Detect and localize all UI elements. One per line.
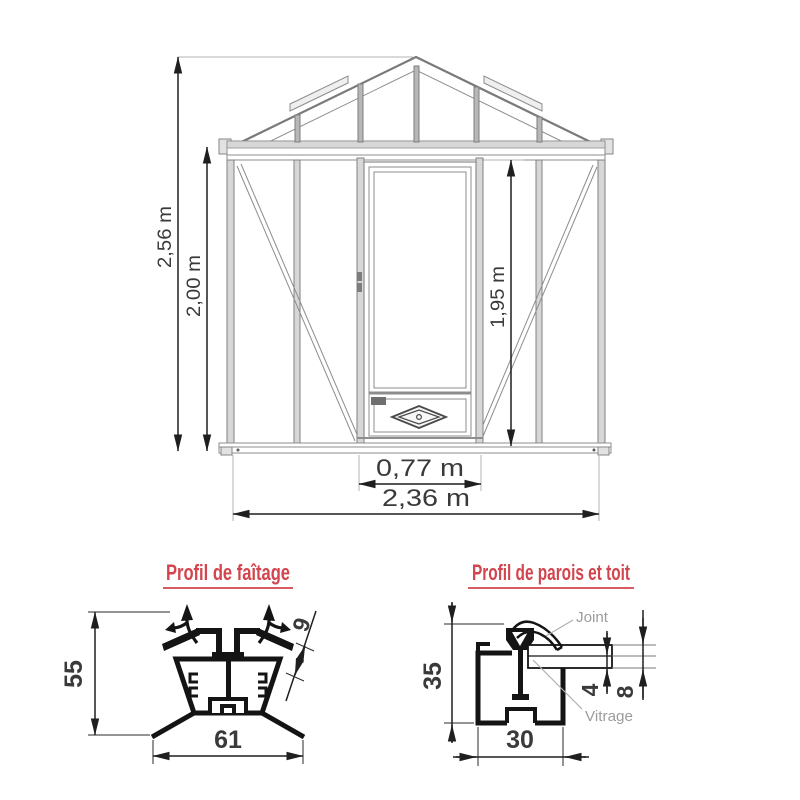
door-handle [357,272,362,281]
base-rail [219,443,611,455]
ridge-profile-title: Profil de faîtage [166,560,290,585]
door-frame [364,162,476,438]
dim-ridge-width: 61 [214,726,242,754]
dim-ridge-height: 55 [60,660,88,688]
ridge-foot [210,699,246,713]
roof-structure [178,57,613,160]
ridge-profile-drawing [152,604,304,737]
dim-ridge-thickness: 9 [287,614,316,634]
dim-glass-single: 4 [577,683,603,696]
greenhouse-elevation [178,57,613,455]
dim-profile-height: 35 [419,662,447,690]
dim-total-width: 2,36 m [382,485,470,512]
ridge-skirt-right [262,713,304,737]
dim-wall-height: 2,00 m [184,255,205,317]
technical-drawing-canvas: 2,56 m 2,00 m 1,95 m 0,77 m 2,36 m Profi… [0,0,800,800]
ridge-profile-section: Profil de faîtage [60,560,316,764]
door-post-left [357,158,364,443]
corner-post-left [227,160,234,443]
gable-glazing-bars [295,66,542,142]
wall-roof-profile-section: Profil de parois et toit [419,560,656,766]
base-foot-left [221,447,232,455]
corner-post-right [598,160,605,443]
door [357,162,483,438]
door-post-right [476,158,483,443]
wall-mullion-right [536,160,542,443]
joint-label: Joint [576,609,609,626]
vitrage-label: Vitrage [585,708,633,725]
dim-profile-width: 30 [506,726,534,754]
base-foot-right [598,447,609,455]
door-lock [371,397,386,405]
dim-door-height: 1,95 m [488,266,509,328]
dim-door-width: 0,77 m [376,455,464,482]
dim-total-height: 2,56 m [155,206,176,268]
ridge-skirt-left [152,713,194,737]
dim-glass-double: 8 [612,685,638,698]
wall-roof-profile-title: Profil de parois et toit [472,560,630,585]
